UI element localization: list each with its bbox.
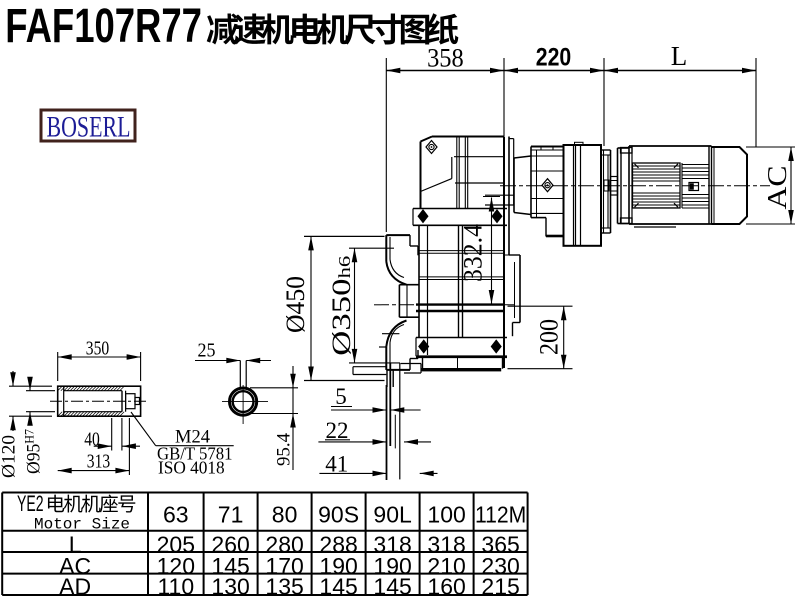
svg-text:Ø450: Ø450 — [281, 276, 310, 333]
svg-text:350: 350 — [86, 337, 109, 359]
svg-text:71: 71 — [218, 502, 244, 528]
svg-text:AD: AD — [59, 574, 91, 596]
svg-text:5: 5 — [335, 384, 347, 409]
svg-text:332.4: 332.4 — [459, 224, 488, 282]
svg-text:Motor Size: Motor Size — [34, 516, 130, 534]
svg-text:220: 220 — [536, 43, 571, 71]
svg-text:ISO 4018: ISO 4018 — [158, 457, 225, 477]
svg-text:130: 130 — [211, 574, 249, 596]
svg-text:95.4: 95.4 — [274, 433, 295, 466]
svg-text:313: 313 — [87, 450, 110, 472]
svg-text:110: 110 — [157, 574, 194, 596]
svg-text:358: 358 — [427, 45, 464, 73]
svg-text:80: 80 — [272, 502, 298, 528]
svg-text:63: 63 — [163, 502, 189, 528]
svg-text:90S: 90S — [318, 502, 359, 528]
svg-text:22: 22 — [326, 418, 349, 443]
svg-text:112M: 112M — [475, 502, 526, 528]
svg-text:145: 145 — [319, 574, 357, 596]
svg-text:160: 160 — [427, 574, 465, 596]
svg-text:90L: 90L — [373, 502, 412, 528]
svg-text:41: 41 — [325, 452, 348, 477]
svg-text:215: 215 — [481, 574, 519, 596]
svg-text:200: 200 — [535, 319, 564, 355]
svg-text:FAF107R77: FAF107R77 — [5, 0, 202, 53]
svg-text:AC: AC — [762, 166, 792, 210]
svg-text:100: 100 — [427, 502, 465, 528]
svg-text:Ø120: Ø120 — [0, 435, 20, 478]
svg-text:L: L — [671, 41, 688, 71]
svg-text:135: 135 — [265, 574, 303, 596]
svg-text:145: 145 — [373, 574, 411, 596]
svg-text:BOSERL: BOSERL — [47, 111, 131, 144]
svg-text:25: 25 — [198, 340, 216, 362]
svg-text:YE2: YE2 — [17, 491, 44, 516]
svg-text:40: 40 — [84, 428, 100, 450]
